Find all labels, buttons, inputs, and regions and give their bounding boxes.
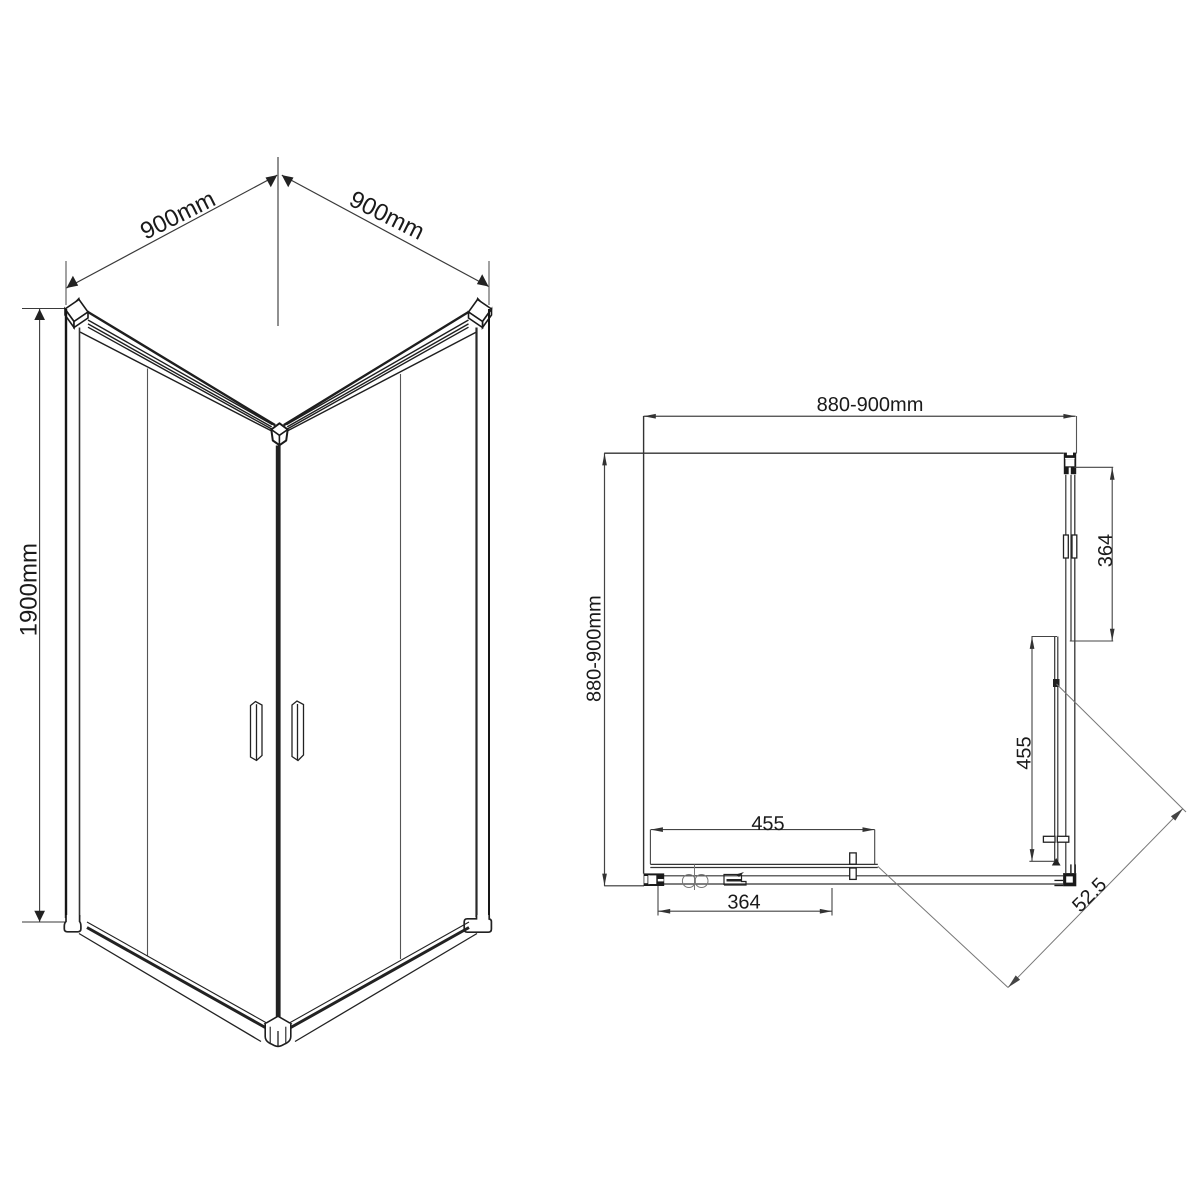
- svg-text:455: 455: [751, 813, 784, 835]
- svg-text:880-900mm: 880-900mm: [584, 595, 606, 702]
- svg-text:455: 455: [1014, 736, 1036, 769]
- svg-text:900mm: 900mm: [345, 186, 429, 246]
- svg-text:364: 364: [727, 892, 760, 914]
- svg-text:364: 364: [1095, 534, 1117, 567]
- svg-text:1900mm: 1900mm: [16, 543, 43, 636]
- svg-text:900mm: 900mm: [136, 186, 220, 246]
- svg-text:880-900mm: 880-900mm: [817, 394, 924, 416]
